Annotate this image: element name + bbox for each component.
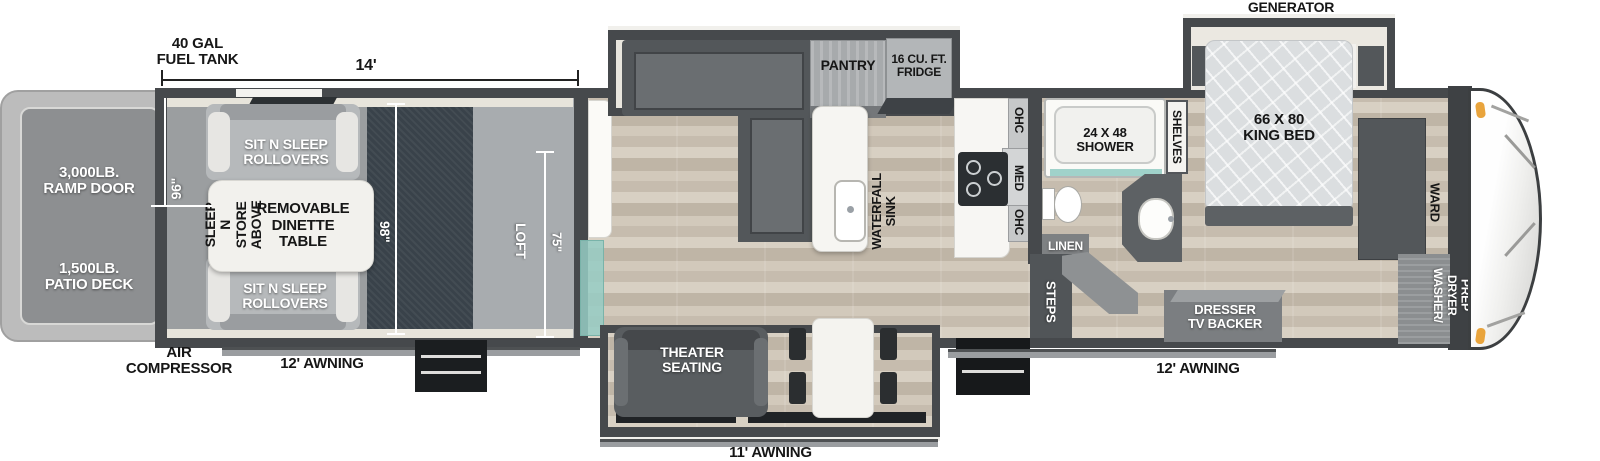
ward-label: WARD xyxy=(1424,176,1444,228)
sectional-chaise-seat xyxy=(750,118,804,234)
shelves-text: SHELVES xyxy=(1169,110,1183,164)
burner xyxy=(987,171,1002,186)
garage-door-panel xyxy=(588,100,612,238)
bath-faucet xyxy=(1168,216,1174,222)
waterfall-sink-label: WATERFALL SINK xyxy=(864,172,904,250)
sofa-back xyxy=(220,104,346,120)
dim-75-text: 75" xyxy=(549,232,564,252)
dim-75-tick-top xyxy=(536,151,554,153)
fuel-tank-label: 40 GAL FUEL TANK xyxy=(125,34,270,70)
dimension-tick-left xyxy=(161,70,163,86)
waterfall-sink-text: WATERFALL SINK xyxy=(870,173,899,250)
entry-glass-panel xyxy=(580,240,604,336)
loft-label: LOFT xyxy=(508,214,534,268)
ohc-upper-text: OHC xyxy=(1011,107,1025,133)
ohc-lower-label: OHC xyxy=(1006,200,1030,244)
ohc-upper-label: OHC xyxy=(1006,98,1030,142)
loft-text: LOFT xyxy=(513,223,529,259)
step-edge xyxy=(421,371,481,374)
awning-garage-label: 12' AWNING xyxy=(248,356,396,373)
dinette-chair xyxy=(789,372,806,404)
garage-trim-bottom xyxy=(167,329,573,338)
theater-armrest xyxy=(754,338,768,406)
med-text: MED xyxy=(1011,165,1025,191)
fridge-label: 16 CU. FT. FRIDGE xyxy=(886,46,952,86)
toilet xyxy=(1054,186,1082,223)
rollover-top-label: SIT N SLEEP ROLLOVERS xyxy=(214,132,358,172)
roof-hatch xyxy=(236,89,322,97)
dinette-chair xyxy=(880,372,897,404)
sectional-seat xyxy=(634,52,804,110)
med-label: MED xyxy=(1006,156,1030,200)
bed-footboard xyxy=(1205,206,1353,226)
awning-main-label: 11' AWNING xyxy=(698,446,843,461)
step-edge xyxy=(421,355,481,358)
awning-entry xyxy=(948,349,1276,358)
dinette-chair xyxy=(880,328,897,360)
garage-entry-steps xyxy=(415,340,487,392)
awning-garage xyxy=(222,347,580,356)
burner xyxy=(966,182,981,197)
theater-armrest xyxy=(614,338,628,406)
shower-label: 24 X 48 SHOWER xyxy=(1058,124,1152,156)
dresser-label: DRESSER TV BACKER xyxy=(1174,298,1276,336)
king-bed-label: 66 X 80 KING BED xyxy=(1213,110,1345,146)
awning-entry-label: 12' AWNING xyxy=(1124,361,1272,378)
front-cap xyxy=(1468,88,1542,350)
washer-dryer-text: WASHER/ DRYER PREP xyxy=(1430,268,1471,323)
dim-98-tick-bottom xyxy=(387,333,405,335)
ward-text: WARD xyxy=(1427,183,1442,222)
sofa-back xyxy=(220,314,346,330)
steps-text: STEPS xyxy=(1043,281,1058,323)
dim-98-tick-top xyxy=(387,103,405,105)
dim-75-label: 75" xyxy=(546,218,566,266)
dinette-chair xyxy=(789,328,806,360)
wardrobe xyxy=(1358,118,1426,260)
dim-98-text: 98" xyxy=(377,221,393,243)
nightstand-right xyxy=(1358,46,1384,86)
rollover-bottom-label: SIT N SLEEP ROLLOVERS xyxy=(213,276,357,316)
pantry-cabinet xyxy=(810,40,886,112)
air-compressor-label: AIR COMPRESSOR xyxy=(108,344,250,378)
wall-bath-partition xyxy=(1028,98,1042,264)
rv-floorplan: 40 GAL FUEL TANK 14' GENERATOR PREP 3,00… xyxy=(0,0,1600,461)
garage-dimension-label: 14' xyxy=(340,56,392,76)
entry-steps xyxy=(956,338,1030,395)
steps-label: STEPS xyxy=(1038,270,1062,334)
garage-dimension-line xyxy=(162,79,578,81)
dinette-label: REMOVABLE DINETTE TABLE xyxy=(233,196,373,256)
faucet xyxy=(847,206,854,213)
dim-96-label: 96" xyxy=(164,166,190,212)
dim-96-text: 96" xyxy=(169,178,184,200)
dimension-tick-right xyxy=(577,70,579,86)
burner xyxy=(966,160,981,175)
fridge-base xyxy=(877,98,958,114)
patio-deck-label: 1,500LB. PATIO DECK xyxy=(14,256,164,298)
step-edge xyxy=(962,370,1024,373)
dim-98-label: 98" xyxy=(374,208,396,256)
ohc-lower-text: OHC xyxy=(1011,209,1025,235)
ramp-door-label: 3,000LB. RAMP DOOR xyxy=(14,160,164,202)
shelves-label: SHELVES xyxy=(1164,104,1188,170)
dinette-table xyxy=(812,318,874,418)
theater-seating-label: THEATER SEATING xyxy=(630,342,754,378)
pantry-label: PANTRY xyxy=(810,56,886,76)
cooktop xyxy=(958,152,1008,206)
dim-75-tick-bottom xyxy=(536,336,554,338)
